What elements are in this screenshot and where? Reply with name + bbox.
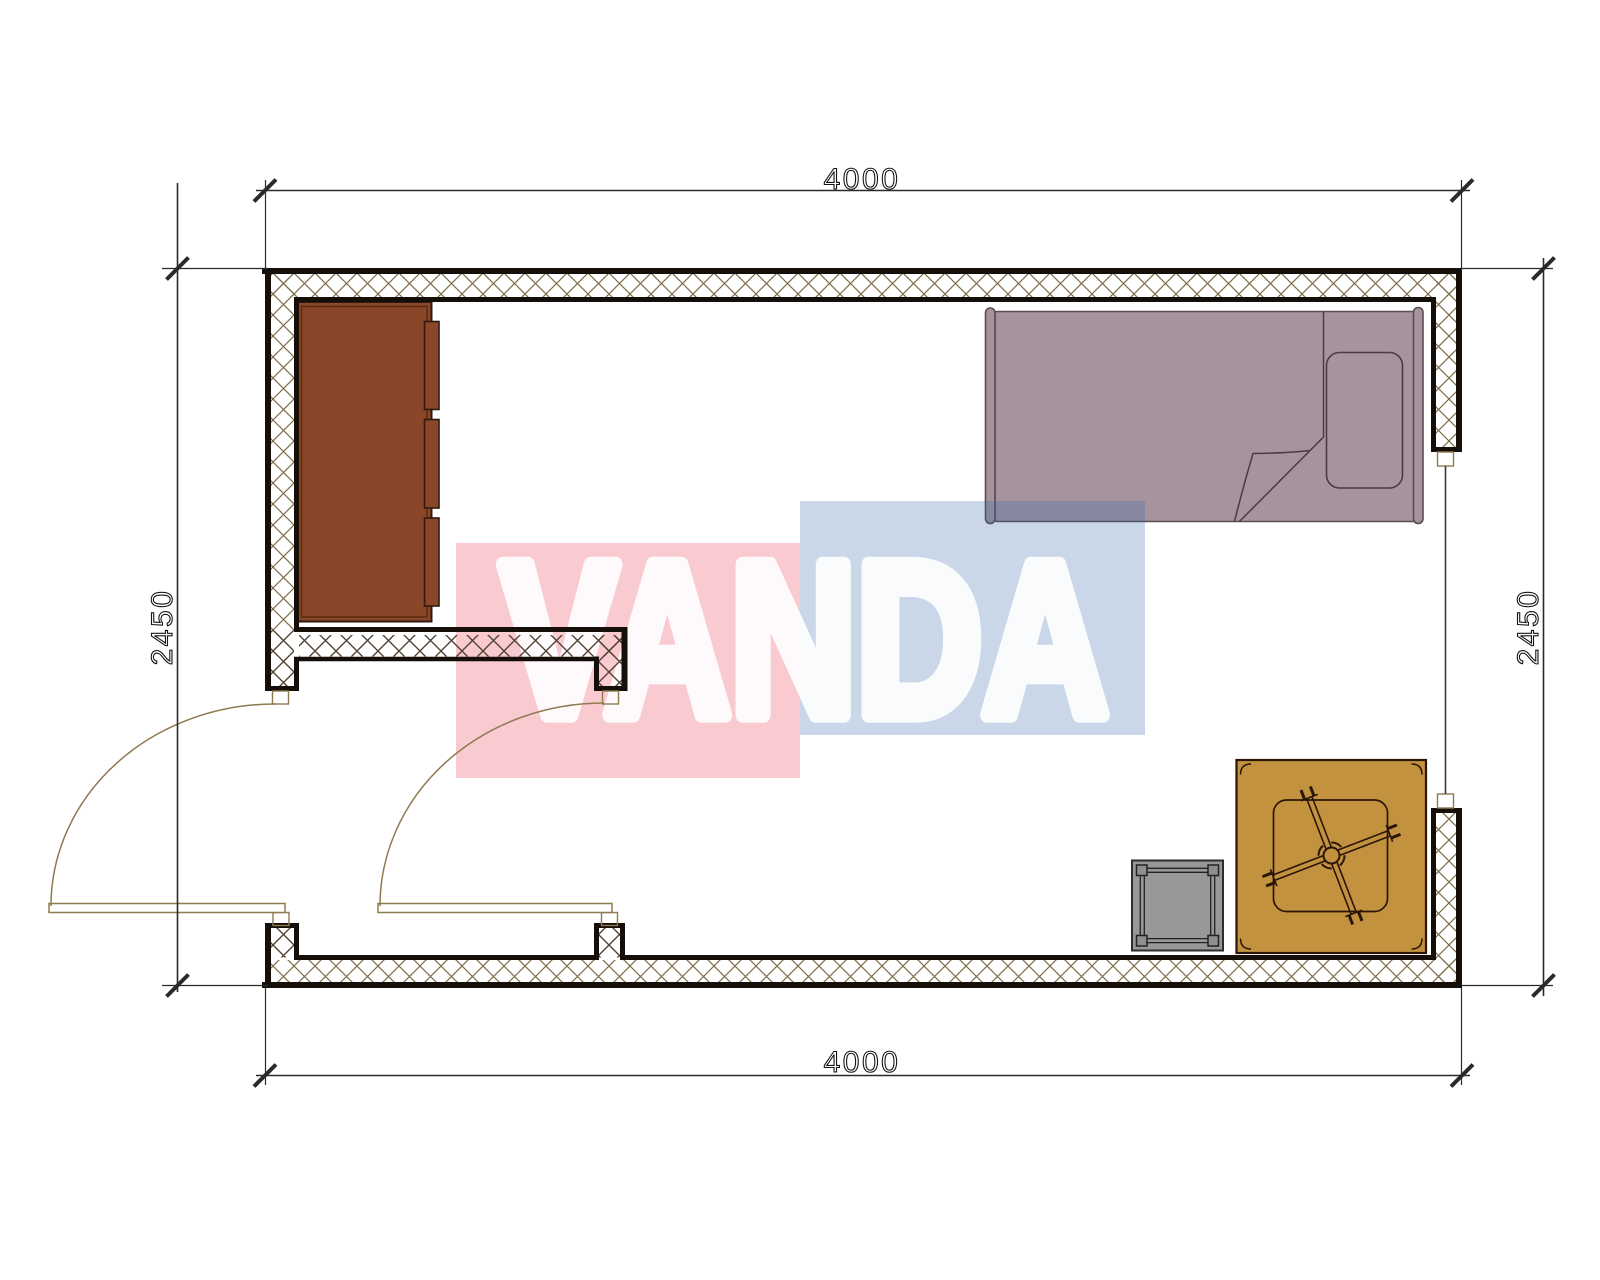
svg-text:2450: 2450	[146, 589, 179, 666]
svg-text:2450: 2450	[1512, 589, 1545, 666]
svg-text:4000: 4000	[824, 163, 901, 196]
svg-text:4000: 4000	[824, 1046, 901, 1079]
